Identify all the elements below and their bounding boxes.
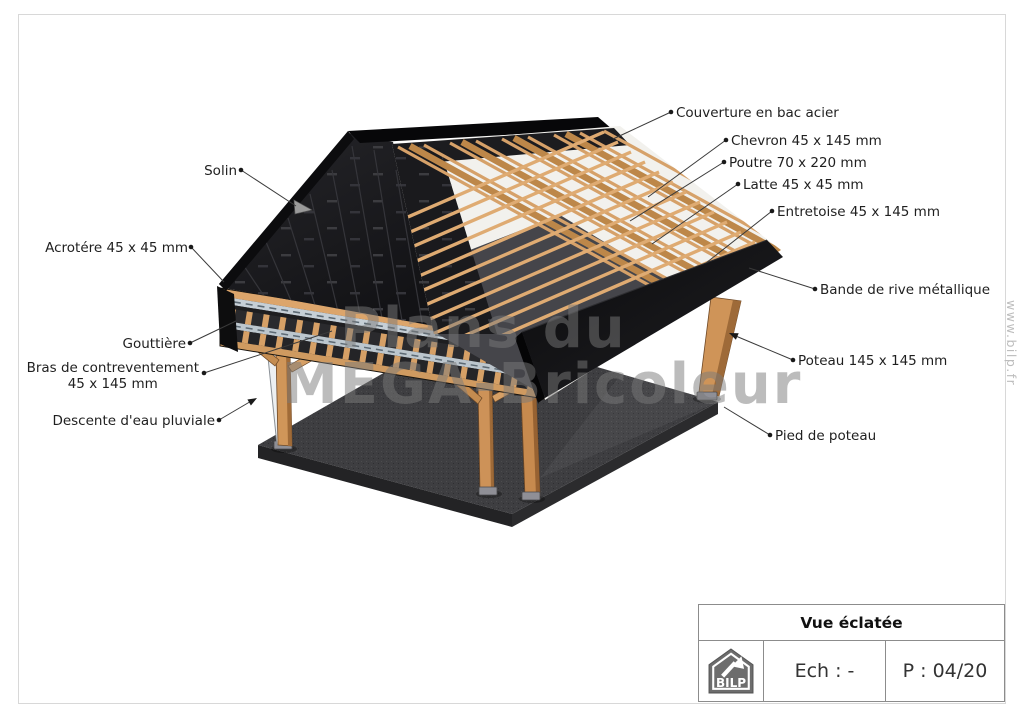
scale-cell: Ech : - xyxy=(764,641,886,701)
callout-chevron: Chevron 45 x 145 mm xyxy=(731,133,882,149)
callout-entretoise: Entretoise 45 x 145 mm xyxy=(777,204,940,220)
bilp-logo: BILP xyxy=(699,641,764,701)
site-watermark: www.bilp.fr xyxy=(1004,300,1019,386)
callout-poteau: Poteau 145 x 145 mm xyxy=(798,353,947,369)
callout-bande-rive: Bande de rive métallique xyxy=(820,282,990,298)
callout-poutre: Poutre 70 x 220 mm xyxy=(729,155,867,171)
callout-acrotere: Acrotére 45 x 45 mm xyxy=(45,240,188,256)
bilp-logo-icon: BILP xyxy=(708,648,754,694)
callout-couverture: Couverture en bac acier xyxy=(676,105,839,121)
title-block: Vue éclatée BILP Ech : - P : 04/20 xyxy=(698,604,1005,702)
callout-descente: Descente d'eau pluviale xyxy=(52,413,215,429)
svg-text:BILP: BILP xyxy=(716,676,746,690)
drawing-title: Vue éclatée xyxy=(699,605,1004,641)
callout-bras: Bras de contreventement 45 x 145 mm xyxy=(27,360,199,393)
callout-latte: Latte 45 x 45 mm xyxy=(743,177,864,193)
page-number-cell: P : 04/20 xyxy=(886,641,1004,701)
callout-solin: Solin xyxy=(204,163,237,179)
callout-pied: Pied de poteau xyxy=(775,428,876,444)
watermark-line2: MEGA-Bricoleur xyxy=(282,352,802,417)
drawing-sheet: Plans du MEGA-Bricoleur www.bilp.fr Couv… xyxy=(0,0,1024,724)
callout-gouttiere: Gouttière xyxy=(123,336,186,352)
